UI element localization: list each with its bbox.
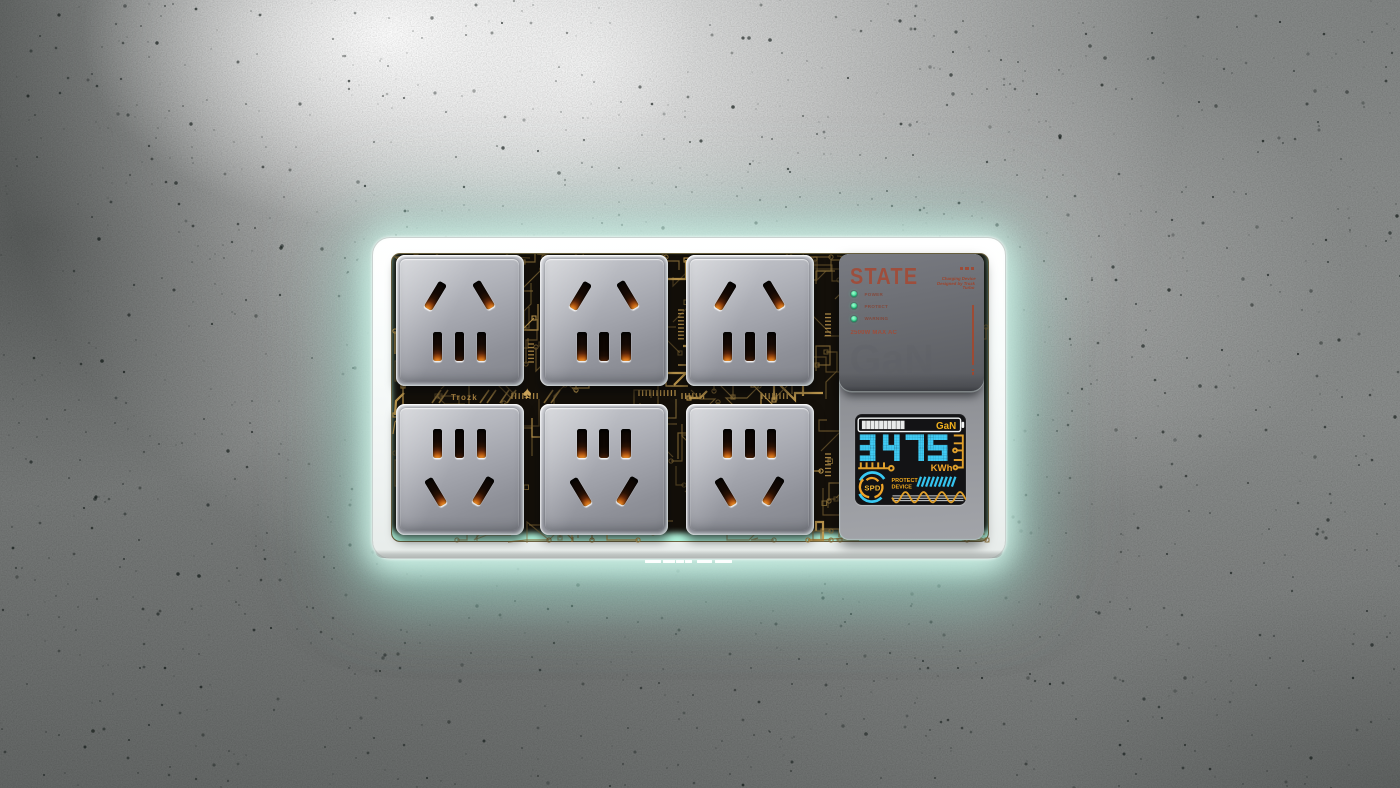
svg-text:GaN: GaN bbox=[936, 421, 956, 432]
svg-text:PROTECT: PROTECT bbox=[891, 478, 918, 484]
svg-text:SPD: SPD bbox=[864, 483, 881, 492]
svg-text:KWh: KWh bbox=[930, 463, 952, 474]
svg-text:DEVICE: DEVICE bbox=[891, 484, 912, 490]
